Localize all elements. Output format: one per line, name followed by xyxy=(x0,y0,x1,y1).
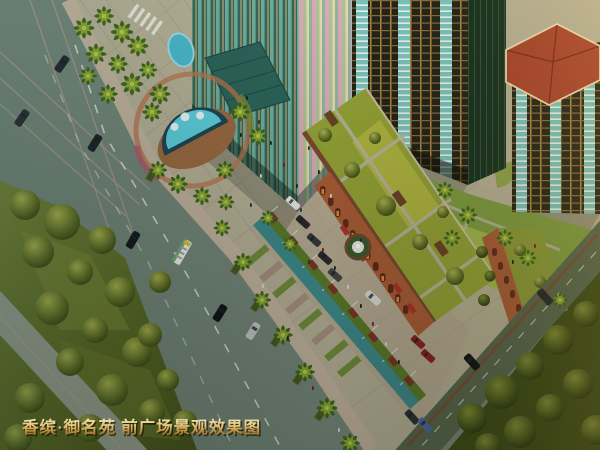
caption-text: 香缤·御名苑 前广场景观效果图 xyxy=(22,417,261,437)
screenshot-root: 香缤·御名苑 前广场景观效果图 香缤·御名苑 前广场景观效果图 xyxy=(0,0,600,450)
vignette-overlay xyxy=(0,0,600,450)
caption: 香缤·御名苑 前广场景观效果图 香缤·御名苑 前广场景观效果图 xyxy=(22,417,263,439)
rendering-canvas: 香缤·御名苑 前广场景观效果图 香缤·御名苑 前广场景观效果图 xyxy=(0,0,600,450)
